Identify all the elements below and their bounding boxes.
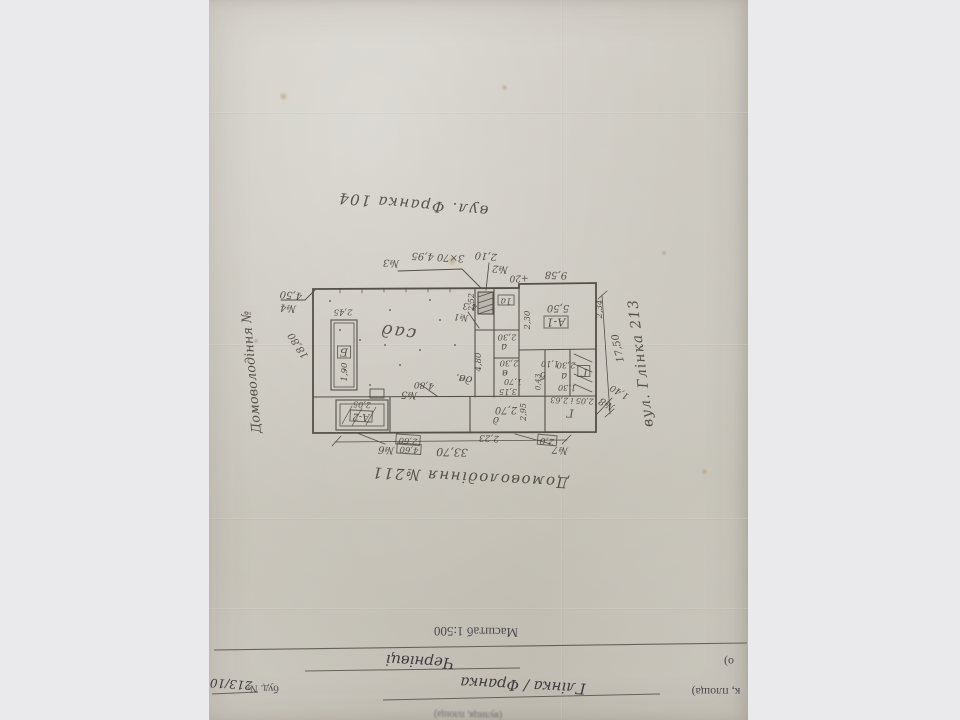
plan-label: к, площа) <box>692 686 741 698</box>
city-value: Чернівці <box>385 652 454 671</box>
scale-label: Масштаб 1:500 <box>434 625 518 639</box>
street-value: Глінка / Франка <box>460 674 586 696</box>
document-photo: вул. Франка 104№33×70 4,95№22,10+209,58№… <box>0 0 960 720</box>
plan-label: о) <box>724 656 734 668</box>
letterhead-annotations: Масштаб 1:500Чернівціо)к, площа)Глінка /… <box>0 0 960 720</box>
plan-label: (вулиця, площа) <box>434 708 503 719</box>
building-number: 213/10 <box>210 677 253 692</box>
